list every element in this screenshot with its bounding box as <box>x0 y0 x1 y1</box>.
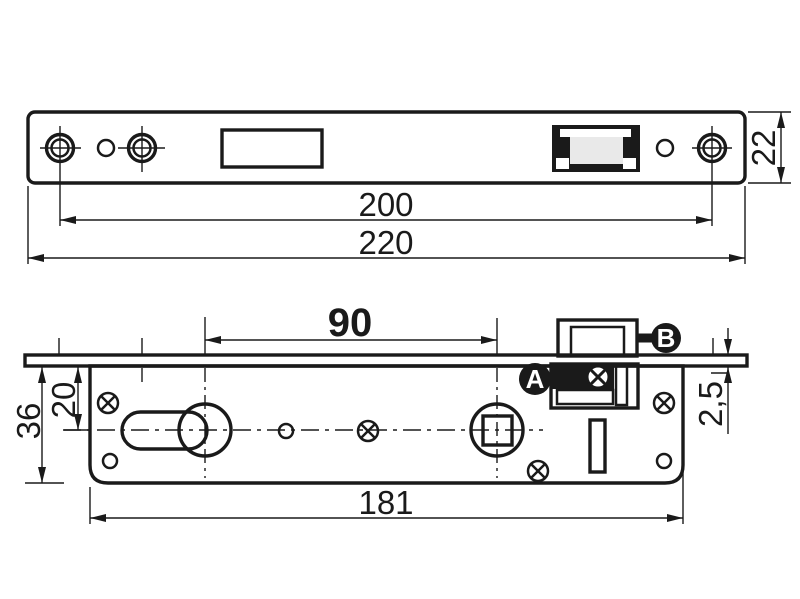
dim-label-36: 36 <box>10 403 47 440</box>
dim-label-200: 200 <box>358 186 413 223</box>
dimension-90: 90 <box>205 301 497 345</box>
small-hole <box>279 424 293 438</box>
screw-cross-icon <box>98 393 118 413</box>
small-hole <box>657 454 671 468</box>
screw-cross-icon <box>654 393 674 413</box>
dim-label-90: 90 <box>328 301 373 345</box>
dim-label-2-5: 2,5 <box>692 381 729 427</box>
rectangular-cutout <box>222 130 322 167</box>
vertical-slot <box>590 420 605 472</box>
center-lines <box>63 317 543 478</box>
dim-label-181: 181 <box>358 484 413 521</box>
dim-label-22: 22 <box>745 130 782 167</box>
callout-b: B <box>636 323 681 353</box>
small-hole <box>98 140 114 156</box>
countersunk-screw-hole-icon <box>118 126 165 172</box>
dim-label-220: 220 <box>358 224 413 261</box>
screw-cross-icon <box>587 366 609 388</box>
small-hole <box>103 454 117 468</box>
dimension-22: 22 <box>745 112 791 183</box>
small-hole <box>657 140 673 156</box>
technical-drawing-canvas: 200 220 22 <box>0 0 800 599</box>
lock-dimension-drawing: 200 220 22 <box>0 0 800 599</box>
latch-bolt-head <box>558 320 637 356</box>
faceplate-front-view <box>28 112 745 183</box>
dimension-181: 181 <box>90 468 683 524</box>
dim-label-20: 20 <box>45 382 82 419</box>
screw-cross-icon <box>358 421 378 441</box>
screw-cross-icon <box>528 461 548 481</box>
callout-a-label: A <box>526 364 545 394</box>
dimension-2-5: 2,5 <box>692 328 732 434</box>
latch-cutout <box>552 125 640 172</box>
dimension-20: 20 <box>45 367 90 430</box>
callout-b-label: B <box>657 323 676 353</box>
